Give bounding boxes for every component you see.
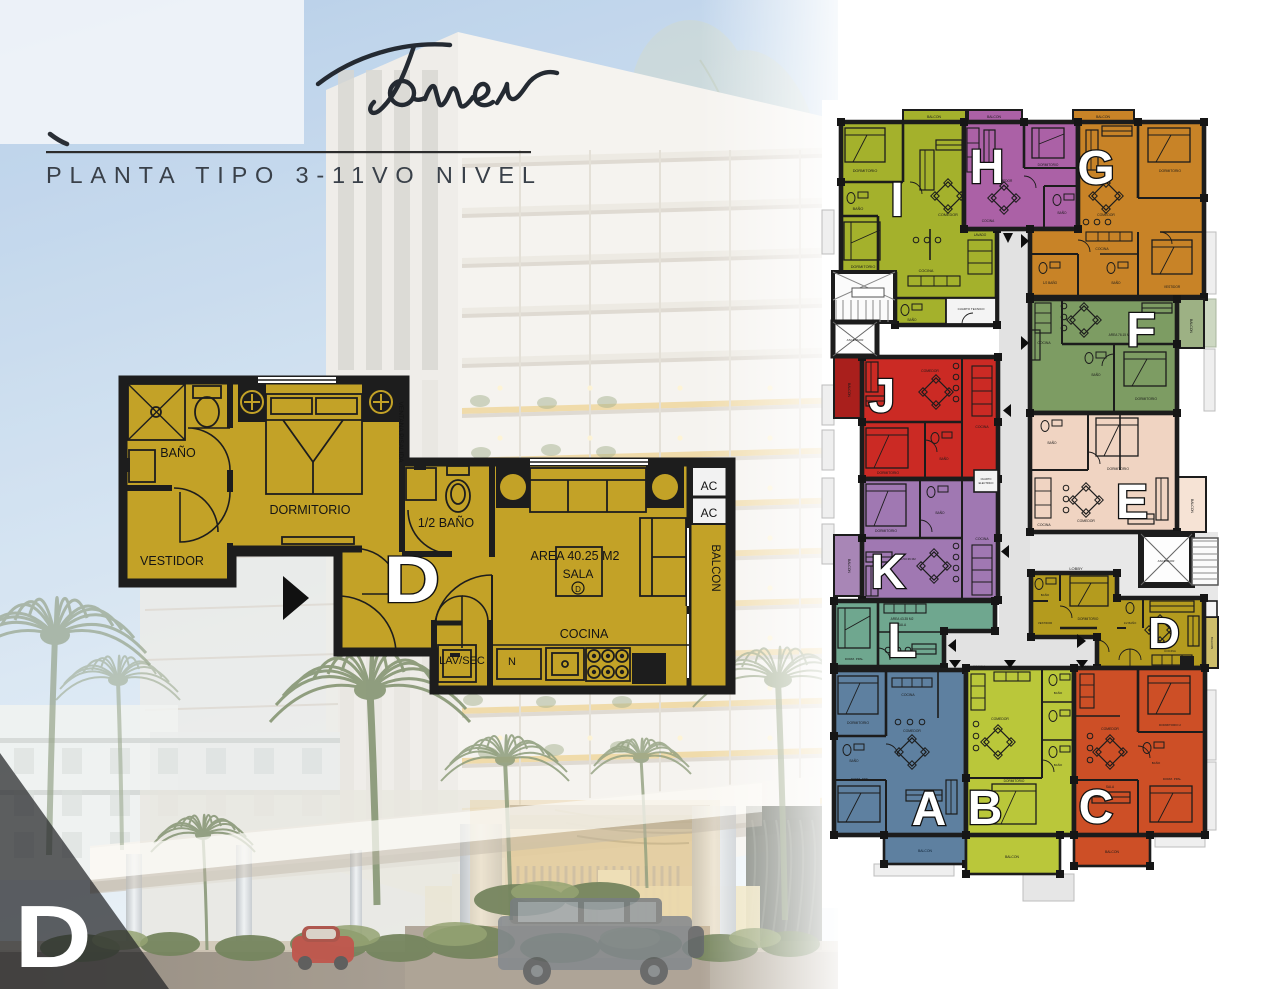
svg-text:H: H <box>970 141 1005 194</box>
svg-text:C: C <box>1079 781 1114 834</box>
svg-text:DORMITORIO: DORMITORIO <box>1078 617 1099 621</box>
svg-text:BALCON: BALCON <box>709 544 721 591</box>
svg-text:COMEDOR: COMEDOR <box>921 369 939 373</box>
svg-text:D: D <box>575 585 581 594</box>
svg-text:BAÑO: BAÑO <box>160 446 196 460</box>
svg-text:1/2 BAÑO: 1/2 BAÑO <box>418 516 475 530</box>
svg-text:VESTIDOR: VESTIDOR <box>1164 285 1181 289</box>
svg-text:BAÑO: BAÑO <box>939 456 949 461</box>
svg-text:COCINA: COCINA <box>560 627 609 641</box>
svg-text:BAÑO: BAÑO <box>1057 210 1067 215</box>
svg-text:BALCON: BALCON <box>1096 115 1110 119</box>
svg-text:BALCON: BALCON <box>1189 319 1193 333</box>
svg-text:BALCON: BALCON <box>1210 637 1214 649</box>
svg-text:F: F <box>1126 304 1155 357</box>
svg-text:AREA 40.25 M2: AREA 40.25 M2 <box>531 549 620 563</box>
svg-text:1/2 BAÑO: 1/2 BAÑO <box>1043 280 1058 285</box>
svg-text:B: B <box>968 782 1003 835</box>
svg-text:DORMITORIO: DORMITORIO <box>875 529 897 533</box>
svg-text:DORMITORIO: DORMITORIO <box>1004 779 1025 783</box>
svg-text:G: G <box>1077 142 1114 195</box>
svg-text:BALCON: BALCON <box>847 383 851 397</box>
svg-text:VESTIDOR: VESTIDOR <box>1038 621 1052 625</box>
svg-text:CUARTO TECNICO: CUARTO TECNICO <box>958 307 986 311</box>
svg-text:COCINA: COCINA <box>973 665 986 669</box>
svg-text:PLANTA TIPO 3-11VO NIVEL: PLANTA TIPO 3-11VO NIVEL <box>46 162 543 188</box>
svg-text:COCINA: COCINA <box>1037 523 1051 527</box>
svg-text:COCINA: COCINA <box>982 219 995 223</box>
svg-text:BALCON: BALCON <box>1190 499 1194 513</box>
svg-text:ELECTRICO: ELECTRICO <box>979 481 994 485</box>
svg-text:BAÑO: BAÑO <box>1041 592 1050 597</box>
svg-text:BAÑO: BAÑO <box>849 758 859 763</box>
svg-text:VESTIDOR: VESTIDOR <box>140 554 204 568</box>
svg-text:COMEDOR: COMEDOR <box>991 717 1009 721</box>
svg-text:DORMITORIO: DORMITORIO <box>847 721 869 725</box>
svg-text:BAÑO: BAÑO <box>1047 440 1057 445</box>
svg-text:N: N <box>508 656 516 668</box>
svg-text:DORM. PPAL: DORM. PPAL <box>1163 777 1182 781</box>
svg-text:DORMITORIO: DORMITORIO <box>877 471 899 475</box>
svg-text:DORMITORIO: DORMITORIO <box>853 169 878 173</box>
svg-text:DORMITORIO: DORMITORIO <box>851 265 876 269</box>
svg-text:BAÑO: BAÑO <box>1054 762 1063 767</box>
svg-text:BALCON: BALCON <box>927 115 941 119</box>
svg-text:BAÑO: BAÑO <box>1091 372 1101 377</box>
svg-text:CUARTO: CUARTO <box>981 477 992 481</box>
svg-text:VENTANA P/SALIDA: VENTANA P/SALIDA <box>397 402 404 464</box>
svg-text:COMEDOR: COMEDOR <box>1077 519 1095 523</box>
svg-text:BAÑO: BAÑO <box>853 206 864 211</box>
svg-text:I: I <box>890 174 903 227</box>
svg-text:ASCENSOR: ASCENSOR <box>1158 559 1176 563</box>
svg-text:DORMITORIO: DORMITORIO <box>1107 467 1129 471</box>
svg-text:COMEDOR: COMEDOR <box>938 213 958 217</box>
svg-text:BALCON: BALCON <box>1105 850 1119 854</box>
svg-text:1/2 BAÑO: 1/2 BAÑO <box>1124 620 1137 625</box>
svg-text:DORMITORIO: DORMITORIO <box>1159 169 1181 173</box>
svg-text:LAV/SEC: LAV/SEC <box>439 655 485 667</box>
svg-text:SALA: SALA <box>563 567 594 581</box>
svg-text:COCINA: COCINA <box>975 537 989 541</box>
svg-text:E: E <box>1116 476 1148 529</box>
svg-text:DORMITORIO: DORMITORIO <box>1135 397 1157 401</box>
svg-text:COMEDOR: COMEDOR <box>1101 727 1119 731</box>
svg-text:DORMITORIO 2: DORMITORIO 2 <box>1159 723 1181 727</box>
svg-text:DORMITORIO: DORMITORIO <box>1038 163 1059 167</box>
svg-text:D: D <box>384 543 440 616</box>
svg-text:DORM. PPAL: DORM. PPAL <box>845 657 864 661</box>
svg-text:BAÑO: BAÑO <box>1111 280 1121 285</box>
svg-text:BALCON: BALCON <box>987 115 1001 119</box>
svg-text:BAÑO: BAÑO <box>1054 690 1063 695</box>
svg-text:LOBBY: LOBBY <box>1069 566 1083 571</box>
svg-text:ASCENSOR: ASCENSOR <box>847 338 865 342</box>
svg-text:COCINA: COCINA <box>919 269 934 273</box>
svg-text:L: L <box>887 615 916 668</box>
svg-text:J: J <box>869 370 896 423</box>
svg-text:D: D <box>1148 609 1180 658</box>
svg-text:BALCON: BALCON <box>847 559 851 573</box>
svg-text:COMEDOR: COMEDOR <box>903 729 921 733</box>
svg-text:DORM. PPAL: DORM. PPAL <box>851 777 870 781</box>
svg-text:COCINA: COCINA <box>975 425 989 429</box>
svg-text:AC: AC <box>701 479 718 493</box>
svg-text:BAÑO: BAÑO <box>907 317 917 322</box>
svg-text:K: K <box>871 546 906 599</box>
svg-text:BAÑO: BAÑO <box>935 510 945 515</box>
svg-text:AC: AC <box>701 506 718 520</box>
svg-text:COCINA: COCINA <box>1095 247 1109 251</box>
svg-text:DORMITORIO: DORMITORIO <box>269 503 350 517</box>
svg-text:LAVADO: LAVADO <box>974 233 987 237</box>
svg-text:BAÑO: BAÑO <box>1152 760 1161 765</box>
svg-text:COCINA: COCINA <box>901 693 915 697</box>
svg-text:A: A <box>912 783 947 836</box>
svg-text:COMEDOR: COMEDOR <box>1097 213 1115 217</box>
svg-text:D: D <box>14 887 92 986</box>
svg-text:BALCON: BALCON <box>918 849 932 853</box>
svg-text:BALCON: BALCON <box>1005 855 1019 859</box>
